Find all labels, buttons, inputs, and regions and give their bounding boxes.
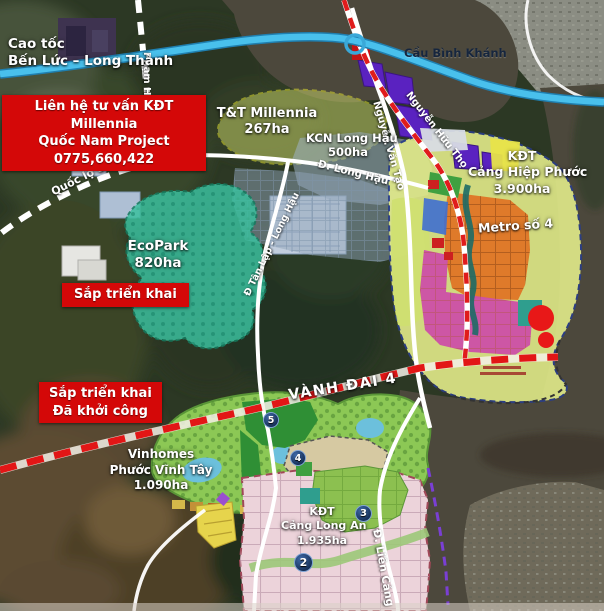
marker-4: 4 [290, 450, 306, 466]
status-started-box: Sắp triển khai Đã khởi công [39, 382, 162, 423]
status-upcoming-box: Sắp triển khai [62, 283, 189, 307]
contact-banner-line2: Quốc Nam Project 0775,660,422 [4, 133, 204, 168]
planning-map: Cao tốc Bến Lức – Long Thành Liên hệ tư … [0, 0, 604, 611]
contact-banner: Liên hệ tư vấn KĐT Millennia Quốc Nam Pr… [2, 95, 206, 171]
marker-5: 5 [263, 412, 279, 428]
marker-3: 3 [355, 505, 372, 522]
marker-2: 2 [294, 553, 313, 572]
status-started-line2: Đã khởi công [49, 403, 152, 421]
contact-banner-line1: Liên hệ tư vấn KĐT Millennia [4, 98, 204, 133]
status-started-line1: Sắp triển khai [49, 385, 152, 403]
